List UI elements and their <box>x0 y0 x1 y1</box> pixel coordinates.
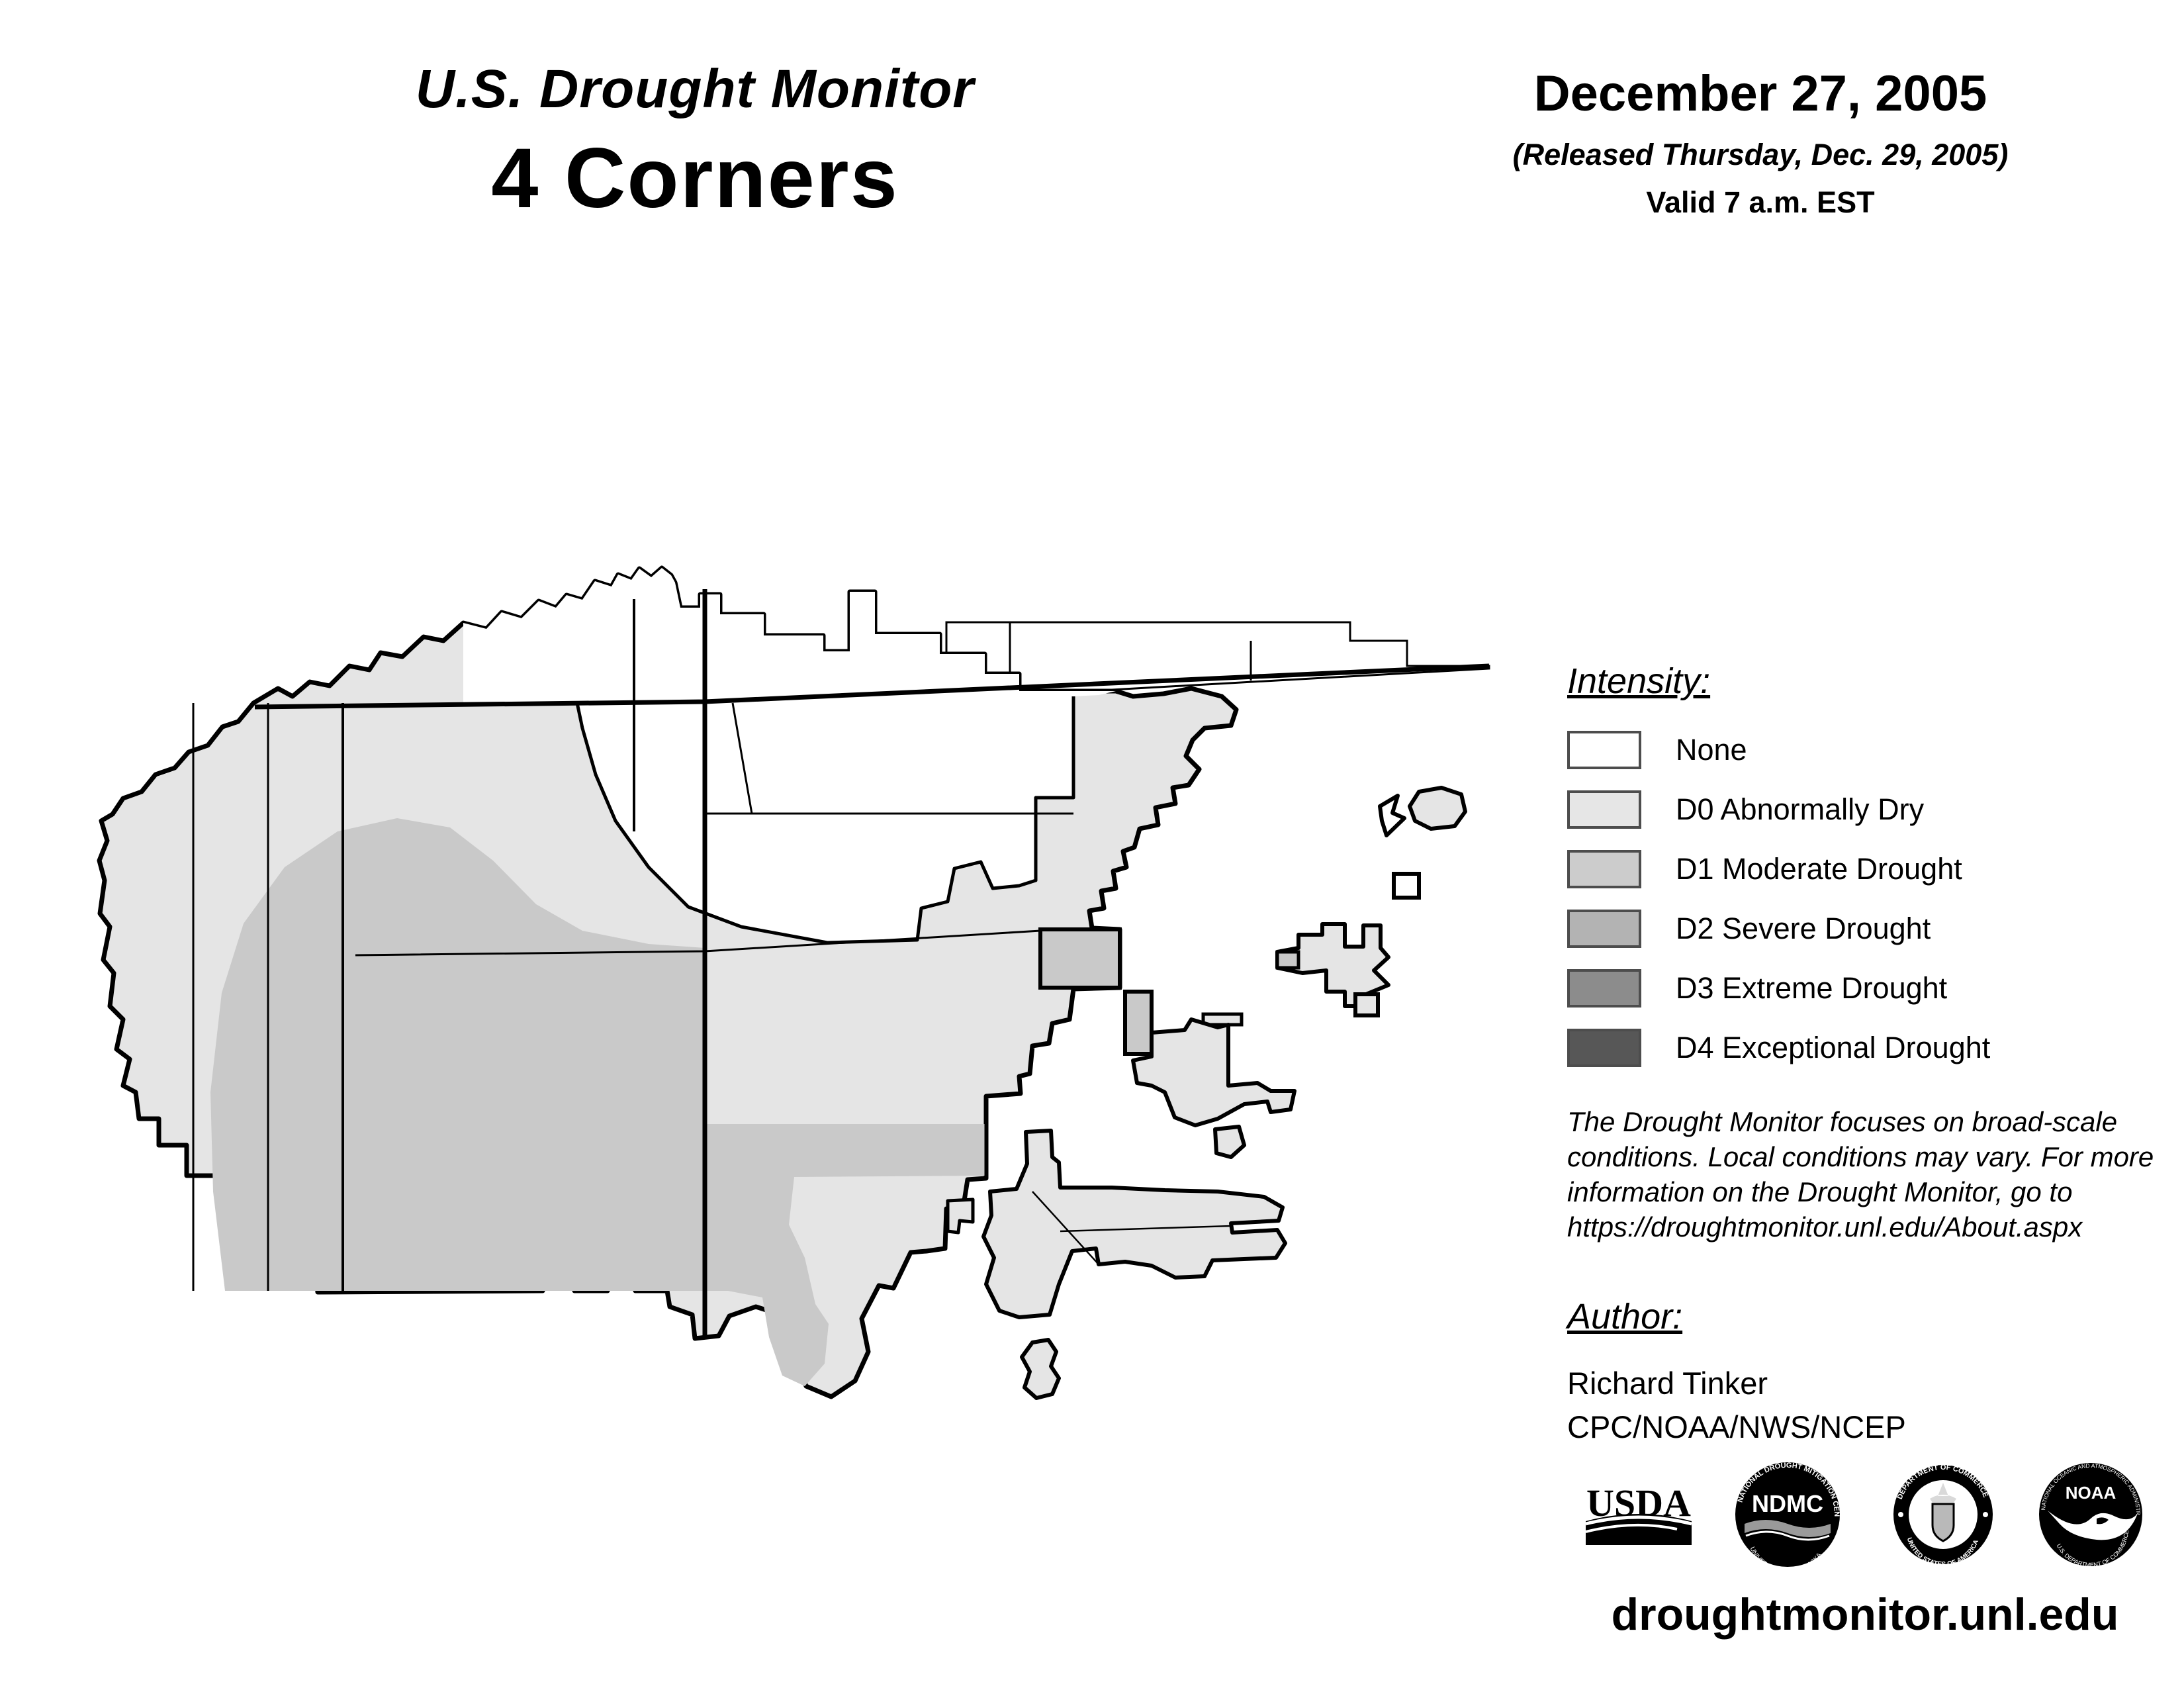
map-polygon-jemez-square <box>1355 994 1378 1015</box>
map-polygon-jemez-d1 <box>1277 952 1298 968</box>
legend-label: D4 Exceptional Drought <box>1676 1031 1990 1065</box>
legend-row-3: D2 Severe Drought <box>1567 899 1990 959</box>
disclaimer-line: The Drought Monitor focuses on broad-sca… <box>1567 1104 2163 1139</box>
legend-label: None <box>1676 733 1747 767</box>
legend-title: Intensity: <box>1567 661 1710 702</box>
usda-logo: USDA <box>1586 1479 1692 1545</box>
author-org: CPC/NOAA/NWS/NCEP <box>1567 1409 1906 1445</box>
legend-label: D0 Abnormally Dry <box>1676 792 1924 827</box>
disclaimer-line: information on the Drought Monitor, go t… <box>1567 1174 2163 1209</box>
disclaimer-text: The Drought Monitor focuses on broad-sca… <box>1567 1104 2163 1244</box>
legend-row-2: D1 Moderate Drought <box>1567 839 1990 899</box>
legend-swatch <box>1567 790 1641 829</box>
author-name: Richard Tinker <box>1567 1365 1768 1401</box>
map-polygon-blob-ne <box>1410 788 1465 829</box>
legend-row-5: D4 Exceptional Drought <box>1567 1018 1990 1078</box>
map-polygon-laguna-d1-tab <box>1125 992 1152 1054</box>
legend-row-1: D0 Abnormally Dry <box>1567 780 1990 839</box>
region-title: 4 Corners <box>285 130 1105 227</box>
droughtmonitor-url: droughtmonitor.unl.edu <box>1567 1589 2163 1640</box>
page-title: U.S. Drought Monitor <box>285 58 1105 120</box>
legend-swatch <box>1567 1029 1641 1067</box>
map-polygon-pear <box>1022 1340 1059 1398</box>
legend-swatch <box>1567 731 1641 769</box>
disclaimer-line: conditions. Local conditions may vary. F… <box>1567 1139 2163 1174</box>
legend: NoneD0 Abnormally DryD1 Moderate Drought… <box>1567 720 1990 1078</box>
legend-label: D3 Extreme Drought <box>1676 971 1947 1006</box>
valid-time: Valid 7 a.m. EST <box>1430 185 2091 220</box>
doc-logo: DEPARTMENT OF COMMERCE UNITED STATES OF … <box>1893 1464 1993 1568</box>
map-polygon-isleta-cluster <box>983 1131 1285 1317</box>
agency-logos: USDA NATIONAL DROUGHT MITIGATION CENTER … <box>1567 1455 2163 1574</box>
legend-label: D2 Severe Drought <box>1676 912 1931 946</box>
disclaimer-line: https://droughtmonitor.unl.edu/About.asp… <box>1567 1209 2163 1244</box>
legend-row-4: D3 Extreme Drought <box>1567 959 1990 1018</box>
legend-swatch <box>1567 850 1641 888</box>
map-polygon-small-square <box>1394 874 1419 898</box>
map-polygon-flag <box>948 1199 973 1233</box>
svg-text:NOAA: NOAA <box>2066 1483 2116 1503</box>
svg-text:NDMC: NDMC <box>1752 1490 1823 1517</box>
map-d1-east-rect <box>1040 929 1120 988</box>
legend-swatch <box>1567 910 1641 948</box>
map-polygon-pentagon <box>1215 1127 1244 1157</box>
map-polygon-acoma-lobe <box>1133 1019 1295 1125</box>
legend-swatch <box>1567 969 1641 1008</box>
legend-row-0: None <box>1567 720 1990 780</box>
map-polygon-arrow <box>1380 796 1404 835</box>
legend-label: D1 Moderate Drought <box>1676 852 1962 886</box>
author-title: Author: <box>1567 1296 1682 1337</box>
map-date: December 27, 2005 <box>1430 65 2091 122</box>
release-date: (Released Thursday, Dec. 29, 2005) <box>1430 138 2091 172</box>
